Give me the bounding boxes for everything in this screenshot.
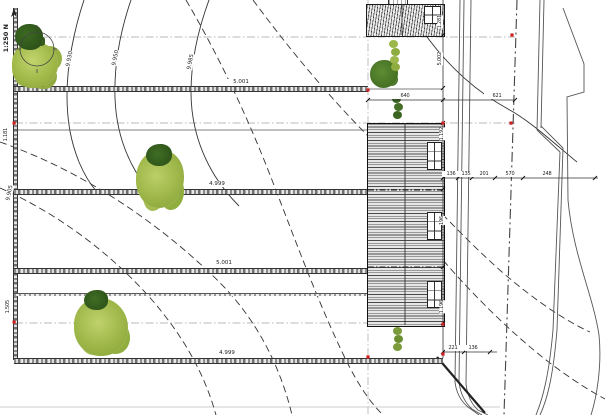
plot-boundary-strip-1: [14, 86, 368, 92]
plot-boundary-strip-4: [14, 358, 443, 364]
edge-dimension-label: 5.002: [437, 52, 443, 65]
contour-elevation-label: 9.985: [186, 54, 195, 71]
bush: [389, 40, 398, 48]
edge-dimension-label: 196: [439, 216, 445, 225]
bush: [391, 48, 400, 56]
plot-boundary-strip-3: [14, 268, 368, 274]
chain-dimension-label: 135: [457, 171, 475, 177]
bush: [394, 103, 403, 111]
plot-boundary-strip-2: [14, 189, 368, 195]
chain-dimension-label: 570: [501, 171, 519, 177]
scale-north-label: 1:250 N: [2, 24, 10, 52]
plot-length-label: 4.999: [211, 350, 243, 356]
bush: [394, 335, 403, 343]
chain-dimension-label: 136: [465, 345, 481, 351]
chain-dimension-label: 248: [538, 171, 556, 177]
contour-elevation-label: 9.930: [65, 51, 74, 68]
plot-length-label: 5.001: [208, 260, 240, 266]
chain-dimension-label: 201: [475, 171, 493, 177]
road-edge-lines: [455, 0, 600, 415]
tree: [84, 290, 108, 310]
bush: [391, 63, 400, 71]
edge-dimension-label: 1.181: [3, 128, 9, 141]
plot-boundary-strip-5: [14, 293, 368, 296]
bush: [393, 111, 402, 119]
edge-dimension-label: 1.196: [439, 300, 445, 313]
width-dimension-label: 621: [484, 93, 510, 99]
width-dimension-label: 640: [392, 93, 418, 99]
tree: [146, 144, 172, 166]
plot-length-label: 4.999: [201, 181, 233, 187]
plot-length-label: 5.001: [225, 79, 257, 85]
tree: [15, 24, 43, 50]
contour-elevation-label: 9.950: [111, 50, 120, 67]
bush: [393, 327, 402, 335]
chain-dimension-label: 221: [445, 345, 461, 351]
window: [427, 142, 442, 170]
bush: [393, 343, 402, 351]
edge-dimension-label: 1.505: [5, 300, 11, 313]
road-embankment-line: [437, 357, 485, 413]
edge-dimension-label: 1.281: [437, 15, 443, 28]
edge-dimension-label: 1.192: [439, 127, 445, 140]
road-centerline: [504, 0, 517, 415]
site-plan-canvas: 1:250 N 5.001 4.999 5.001 4.999 9.930 9.…: [0, 0, 605, 415]
